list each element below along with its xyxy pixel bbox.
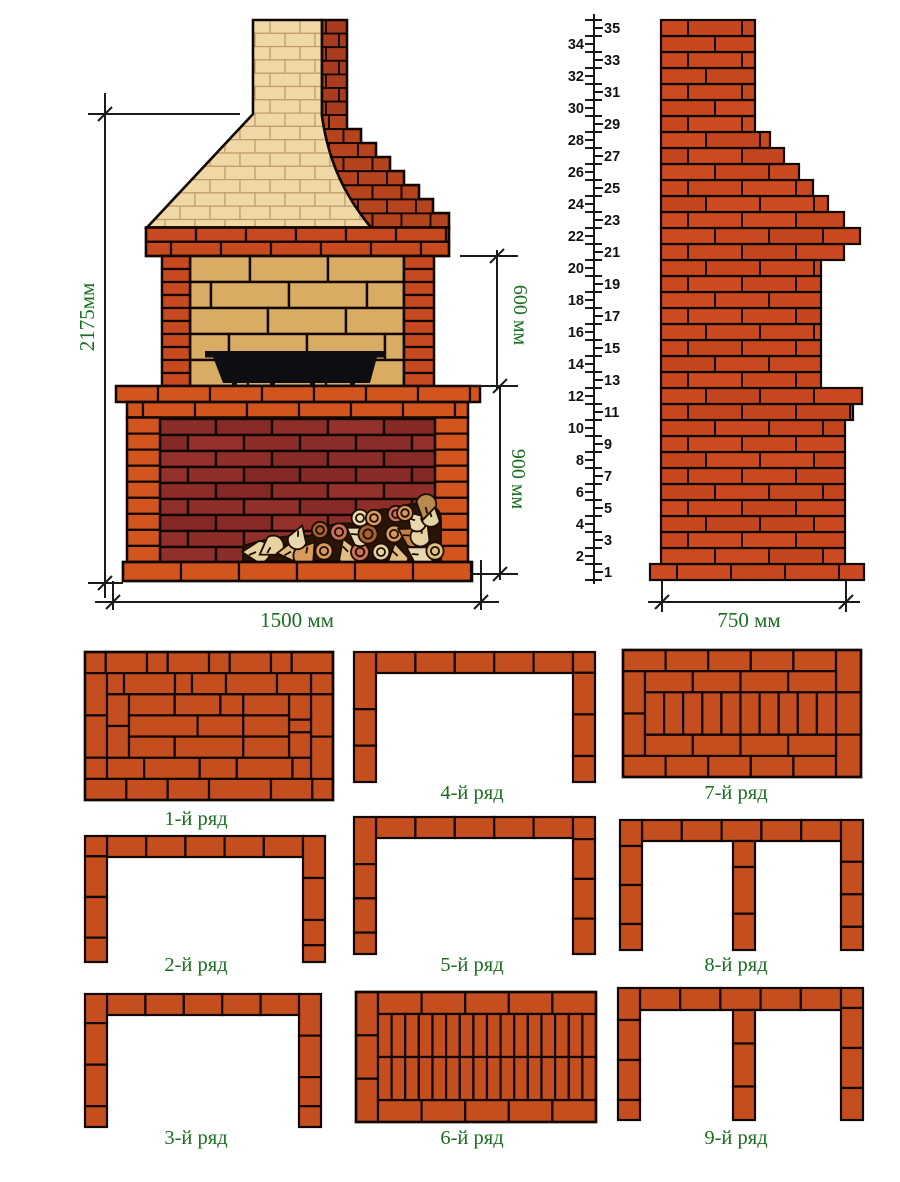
svg-text:4: 4: [576, 517, 584, 533]
svg-text:16: 16: [568, 325, 584, 341]
svg-text:17: 17: [604, 309, 620, 325]
svg-text:32: 32: [568, 69, 584, 85]
svg-text:22: 22: [568, 229, 584, 245]
svg-text:21: 21: [604, 245, 620, 261]
svg-text:28: 28: [568, 133, 584, 149]
svg-text:7: 7: [604, 469, 612, 485]
svg-text:3-й ряд: 3-й ряд: [164, 1127, 227, 1149]
svg-text:2-й ряд: 2-й ряд: [164, 954, 227, 976]
svg-text:20: 20: [568, 261, 584, 277]
svg-text:5-й ряд: 5-й ряд: [440, 954, 503, 976]
svg-text:8: 8: [576, 453, 584, 469]
svg-text:12: 12: [568, 389, 584, 405]
svg-text:29: 29: [604, 117, 620, 133]
svg-text:6: 6: [576, 485, 584, 501]
svg-text:18: 18: [568, 293, 584, 309]
svg-text:4-й ряд: 4-й ряд: [440, 782, 503, 804]
svg-text:5: 5: [604, 501, 612, 517]
svg-text:26: 26: [568, 165, 584, 181]
svg-text:600 мм: 600 мм: [509, 285, 531, 346]
svg-text:30: 30: [568, 101, 584, 117]
svg-text:8-й ряд: 8-й ряд: [704, 954, 767, 976]
svg-text:15: 15: [604, 341, 620, 357]
svg-text:3: 3: [604, 533, 612, 549]
svg-text:750 мм: 750 мм: [717, 608, 780, 632]
svg-text:23: 23: [604, 213, 620, 229]
svg-text:1: 1: [604, 565, 612, 581]
svg-text:9: 9: [604, 437, 612, 453]
svg-text:10: 10: [568, 421, 584, 437]
svg-text:11: 11: [604, 405, 619, 421]
svg-text:25: 25: [604, 181, 620, 197]
svg-text:14: 14: [568, 357, 584, 373]
svg-text:2: 2: [576, 549, 584, 565]
svg-text:33: 33: [604, 53, 620, 69]
svg-text:9-й ряд: 9-й ряд: [704, 1127, 767, 1149]
svg-text:31: 31: [604, 85, 620, 101]
svg-text:24: 24: [568, 197, 584, 213]
svg-text:900 мм: 900 мм: [507, 449, 529, 510]
svg-text:35: 35: [604, 21, 620, 37]
svg-text:2175мм: 2175мм: [75, 283, 99, 352]
svg-text:13: 13: [604, 373, 620, 389]
svg-text:7-й ряд: 7-й ряд: [704, 782, 767, 804]
svg-text:19: 19: [604, 277, 620, 293]
svg-text:1-й ряд: 1-й ряд: [164, 808, 227, 830]
svg-text:1500 мм: 1500 мм: [260, 608, 334, 632]
svg-text:6-й ряд: 6-й ряд: [440, 1127, 503, 1149]
svg-text:34: 34: [568, 37, 584, 53]
svg-text:27: 27: [604, 149, 620, 165]
